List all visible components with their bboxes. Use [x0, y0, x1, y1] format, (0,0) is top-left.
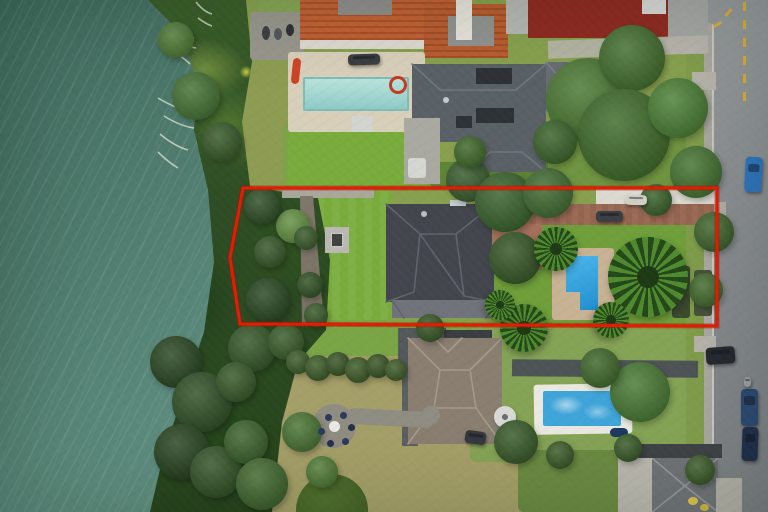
outdoor-furniture	[327, 440, 334, 447]
outdoor-furniture	[340, 412, 347, 419]
outdoor-furniture	[700, 504, 709, 511]
outdoor-furniture	[329, 421, 340, 432]
outdoor-furniture	[318, 428, 325, 435]
aerial-photo	[0, 0, 768, 512]
outdoor-furniture	[688, 497, 698, 505]
outdoor-furniture	[262, 26, 270, 40]
outdoor-furniture	[342, 438, 349, 445]
outdoor-furniture	[274, 28, 282, 40]
furniture-layer	[0, 0, 768, 512]
outdoor-furniture	[348, 424, 355, 431]
outdoor-furniture	[325, 414, 332, 421]
outdoor-furniture	[286, 24, 294, 36]
